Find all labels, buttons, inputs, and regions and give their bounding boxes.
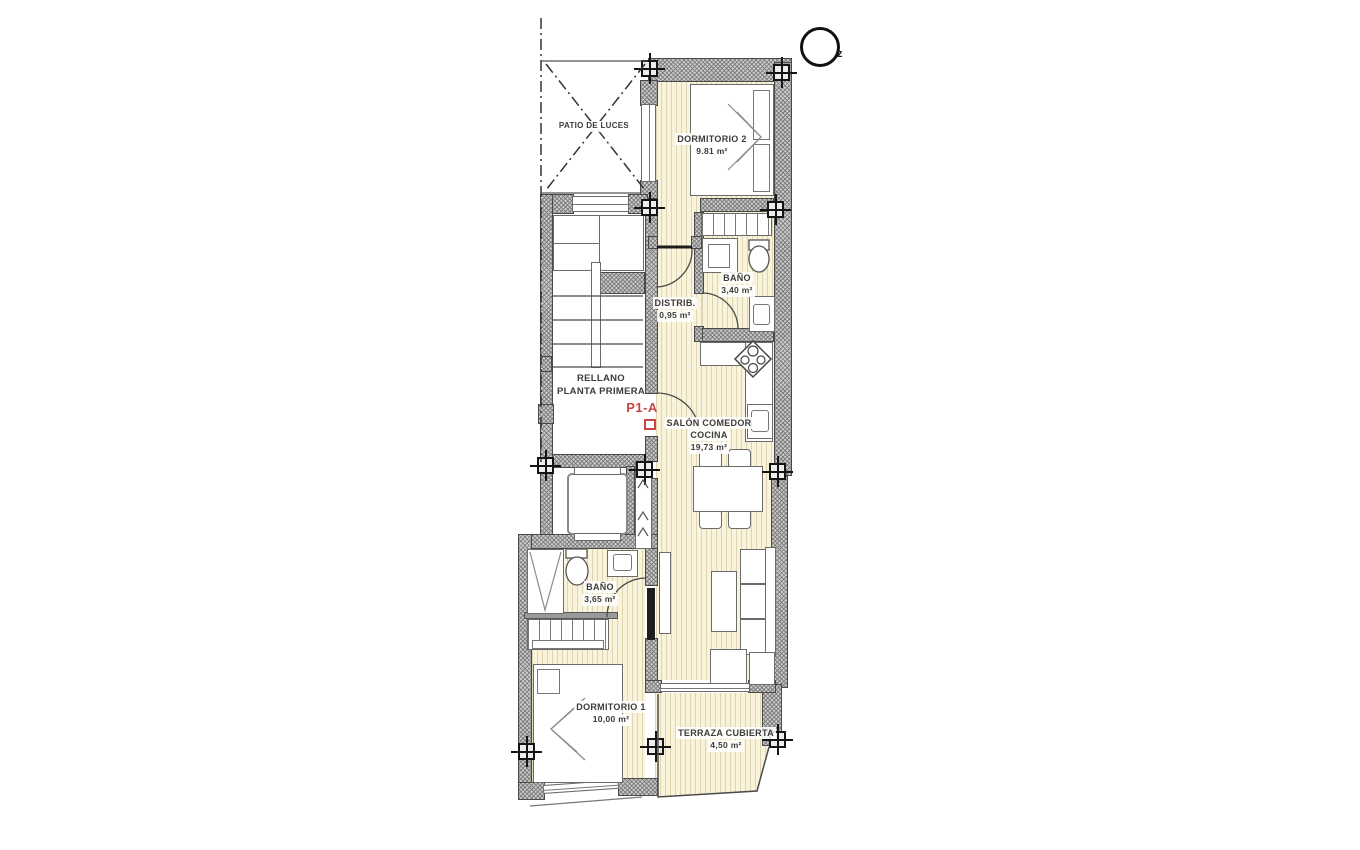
column-marker [518, 743, 535, 760]
dining-table-icon [693, 466, 763, 512]
wardrobe-rail [532, 640, 604, 649]
patio-label: PATIO DE LUCES [542, 121, 646, 132]
chair-icon [699, 511, 722, 529]
room-name: DORMITORIO 2 [675, 133, 748, 145]
column-marker [769, 463, 786, 480]
column-marker [636, 461, 653, 478]
wardrobe-icon [701, 213, 772, 236]
compass-icon [800, 27, 840, 67]
column-marker [767, 201, 784, 218]
window-dormitorio2-patio [641, 104, 656, 182]
ottoman-icon [749, 652, 775, 685]
room-name: BAÑO [584, 581, 616, 593]
column-marker [773, 64, 790, 81]
sofa-back [765, 547, 776, 657]
unit-label: P1-A [620, 399, 664, 417]
room-label-salon: SALÓN COMEDOR COCINA 19,73 m² [653, 417, 765, 454]
room-name: BAÑO [721, 272, 753, 284]
room-area: 0,95 m² [657, 310, 692, 321]
sofa-cushion [740, 584, 766, 619]
floor-plan: z [0, 0, 1360, 850]
landing-line2: PLANTA PRIMERA [557, 386, 645, 397]
column-marker [641, 60, 658, 77]
room-label-dormitorio-1: DORMITORIO 1 10,00 m² [558, 701, 664, 726]
room-area: 3,65 m² [582, 594, 617, 605]
compass-north-label: z [837, 48, 843, 60]
wall [618, 778, 658, 796]
wall [648, 236, 658, 249]
window-stairwell [572, 196, 629, 212]
chair-icon [728, 511, 751, 529]
kitchen-counter [700, 342, 746, 366]
wall [540, 356, 552, 372]
sink-basin [613, 554, 632, 571]
column-marker [537, 457, 554, 474]
sofa-cushion [740, 549, 766, 584]
room-area: 4,50 m² [708, 740, 743, 751]
stairs-stringer [591, 262, 601, 368]
column-marker [641, 199, 658, 216]
window-salon-terraza [660, 683, 750, 692]
landing-line1: RELLANO [577, 373, 625, 384]
landing-label: RELLANO PLANTA PRIMERA [546, 373, 656, 399]
wall [645, 548, 658, 586]
shower-tray [708, 244, 730, 268]
elevator-icon [567, 473, 628, 535]
unit-label-text: P1-A [626, 400, 658, 415]
elevator-door-top [574, 467, 621, 475]
room-name2: COCINA [688, 429, 729, 441]
room-label-dormitorio-2: DORMITORIO 2 9.81 m² [660, 133, 764, 158]
shower-icon [527, 549, 564, 614]
patio-label-text: PATIO DE LUCES [557, 121, 631, 132]
armchair-icon [710, 649, 747, 684]
room-label-bano-1: BAÑO 3,40 m² [707, 272, 767, 297]
pillow-icon [537, 669, 560, 694]
sill-line [530, 797, 642, 806]
wall [518, 782, 545, 800]
room-name: DORMITORIO 1 [574, 701, 647, 713]
room-label-terraza: TERRAZA CUBIERTA 4,50 m² [671, 727, 781, 752]
room-label-distribuidor: DISTRIB. 0,95 m² [646, 297, 704, 322]
wall [648, 58, 792, 82]
tv-unit-icon [659, 552, 671, 634]
coffee-table-icon [711, 571, 737, 632]
wall [774, 62, 792, 476]
room-label-bano-2: BAÑO 3,65 m² [570, 581, 630, 606]
wall [645, 198, 658, 394]
room-area: 9.81 m² [694, 146, 729, 157]
wall [538, 404, 554, 424]
room-name: DISTRIB. [653, 297, 698, 309]
door-leaf-dormitorio1 [647, 588, 655, 640]
room-area: 3,40 m² [719, 285, 754, 296]
room-area: 19,73 m² [689, 442, 729, 453]
room-name: TERRAZA CUBIERTA [676, 727, 776, 739]
column-marker [647, 738, 664, 755]
room-name: SALÓN COMEDOR [665, 417, 754, 429]
elevator-door-bottom [574, 533, 621, 541]
room-area: 10,00 m² [591, 714, 631, 725]
sink-basin [753, 304, 770, 325]
